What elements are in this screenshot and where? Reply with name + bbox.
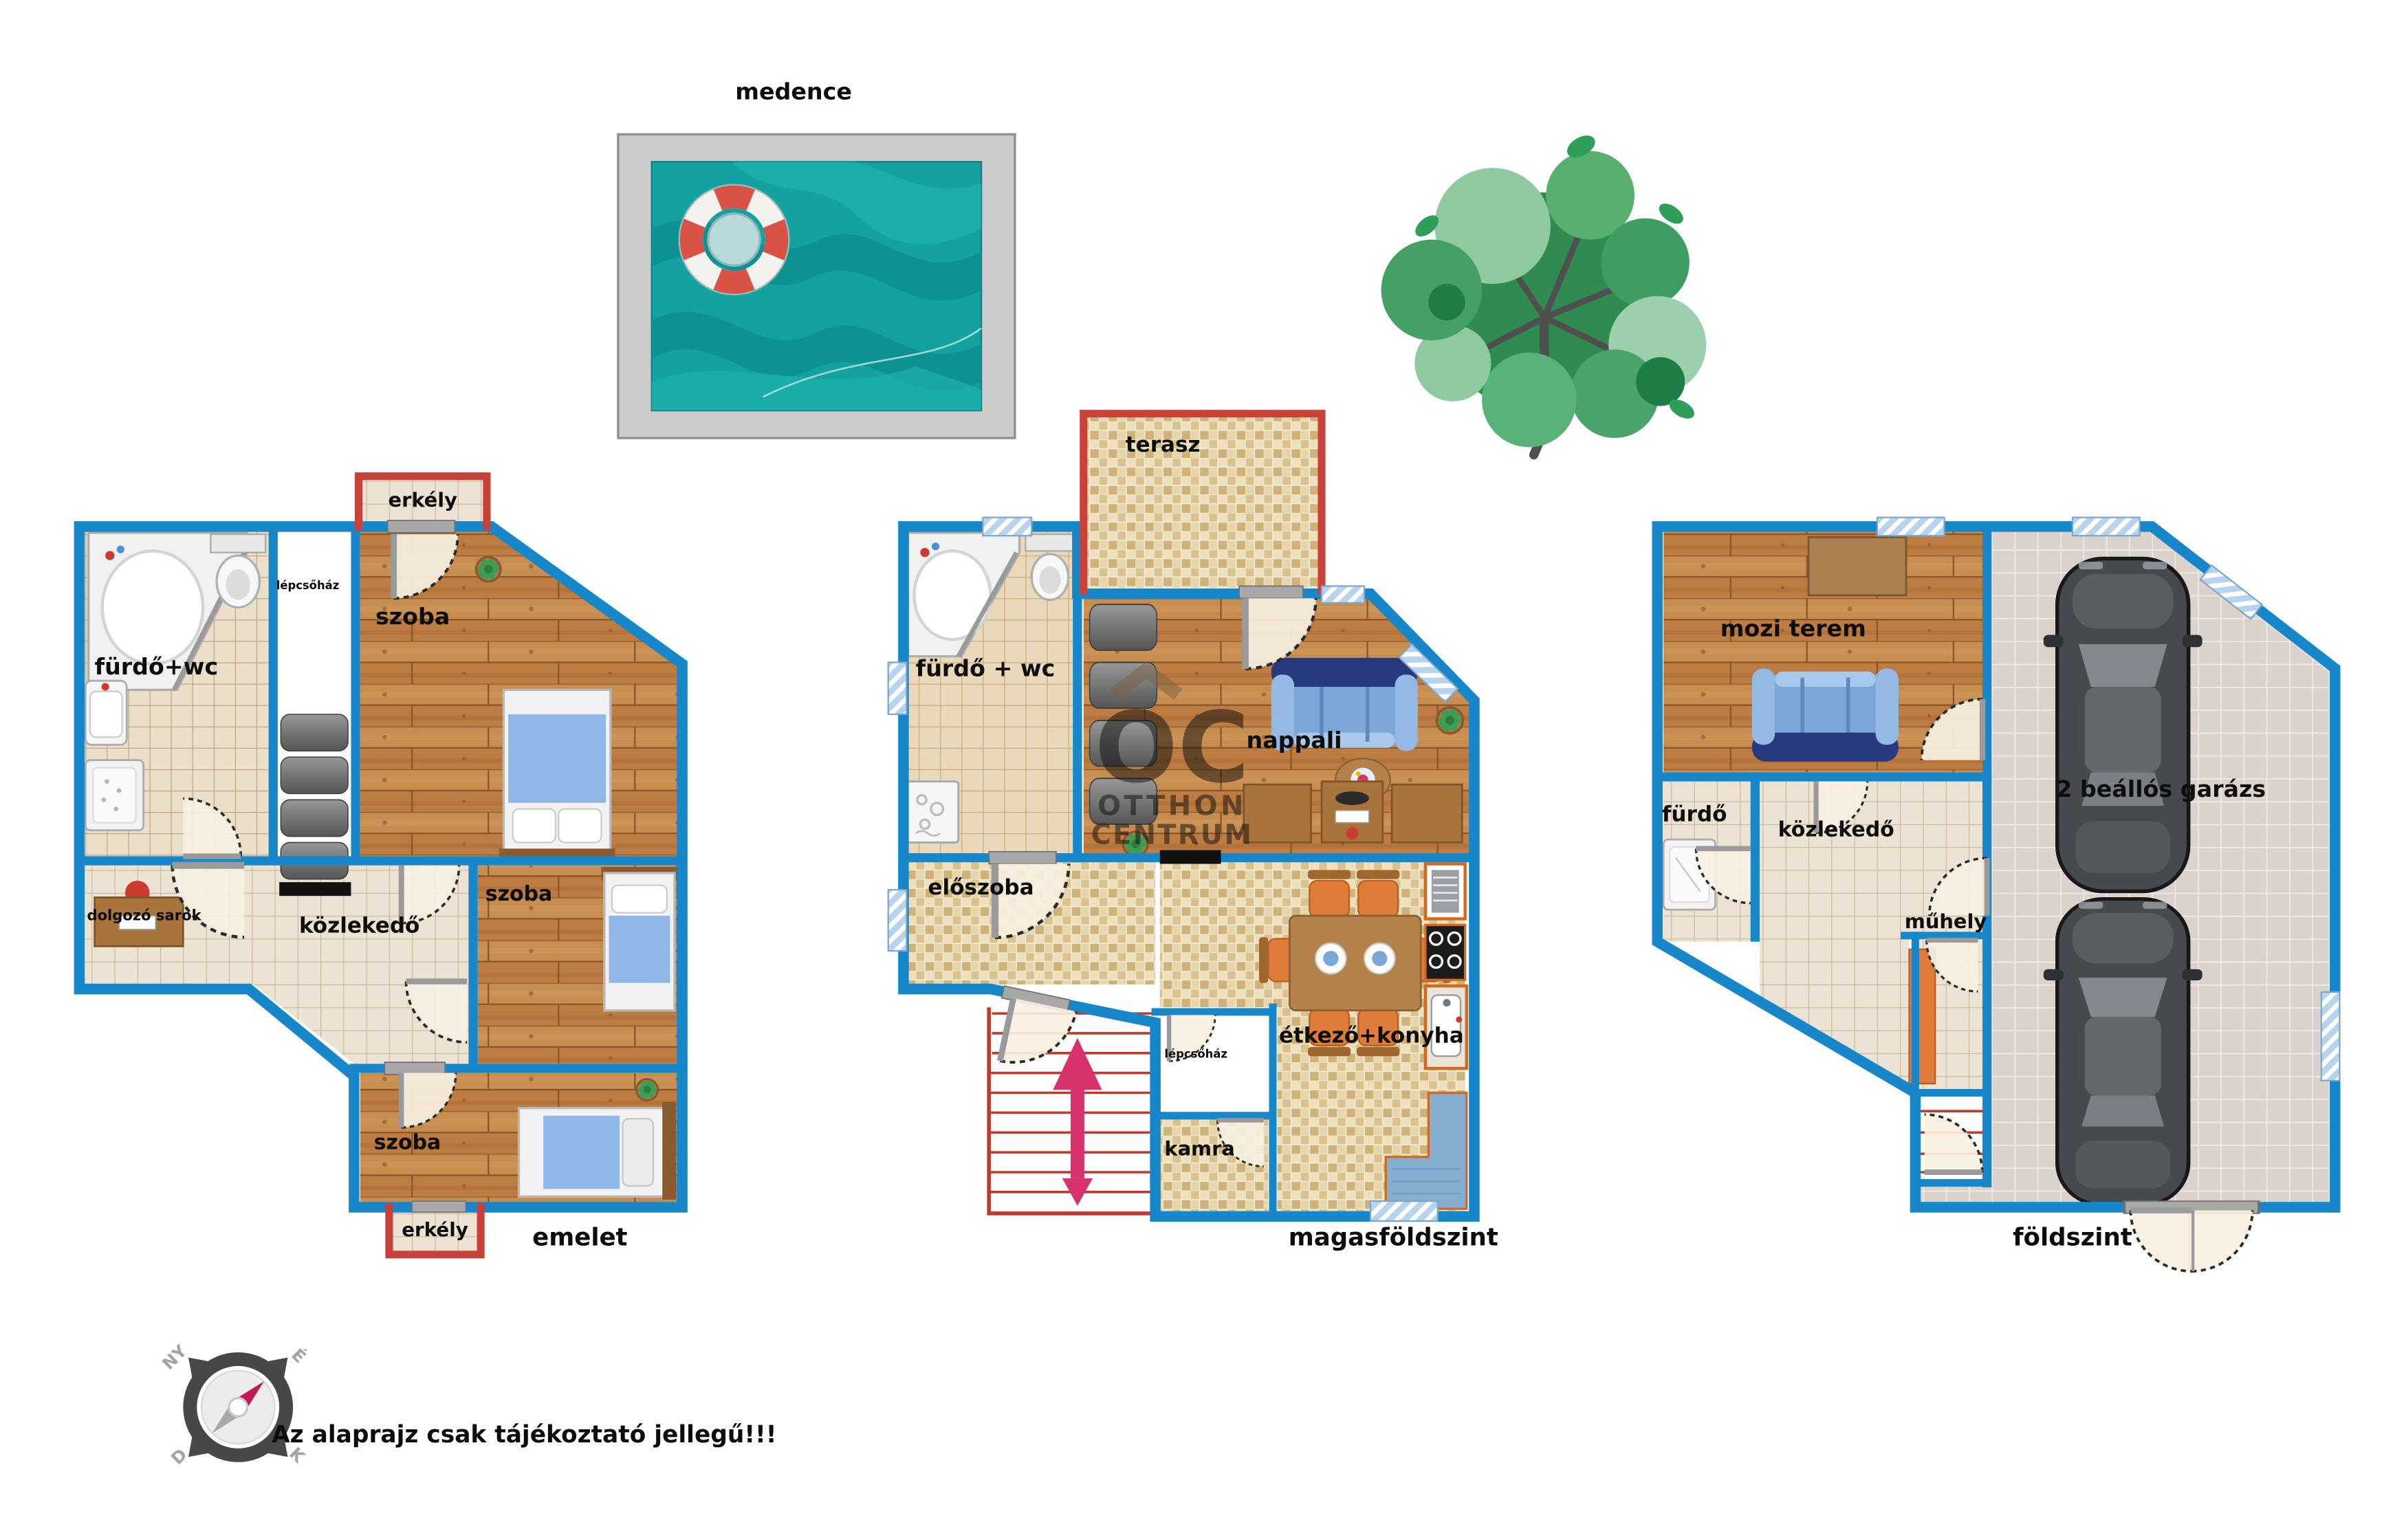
floor-plan-emelet: erkély fürdő+wc lépcsőház szoba dolgozó …: [79, 476, 682, 1255]
room-label-furdo: fürdő: [1662, 802, 1727, 826]
compass-icon: NY É D K: [158, 1341, 310, 1468]
single-bed-horizontal-icon: [519, 1102, 677, 1200]
room-label-kozlekedo: közlekedő: [299, 913, 419, 938]
room-label-szoba-bottom: szoba: [374, 1131, 441, 1155]
room-label-kozlekedo: közlekedő: [1778, 818, 1894, 842]
room-label-eloszoba: előszoba: [928, 875, 1034, 900]
computer-desk-icon: [1244, 782, 1462, 843]
room-label-szoba-mid: szoba: [485, 882, 552, 906]
washing-machine-icon: [906, 782, 958, 843]
sink-icon: [85, 681, 127, 745]
disclaimer-text: Az alaprajz csak tájékoztató jellegű!!!: [272, 1421, 776, 1449]
room-label-erkely-bottom: erkély: [402, 1218, 468, 1241]
tree-icon: [1381, 131, 1707, 454]
pool-label: medence: [735, 78, 852, 104]
room-label-kamra: kamra: [1164, 1137, 1234, 1160]
floor-label-foldszint: földszint: [2013, 1224, 2132, 1252]
pool: medence: [618, 78, 1015, 438]
floorplan-canvas: medence: [0, 0, 2393, 1540]
room-label-lepcsohaz: lépcsőház: [1164, 1047, 1227, 1060]
watermark-centrum: CENTRUM: [1091, 819, 1254, 851]
room-label-szoba-top: szoba: [375, 603, 450, 630]
lifebuoy-icon: [679, 185, 789, 295]
watermark-oc: OC: [1095, 691, 1249, 805]
shower-icon: [85, 760, 143, 830]
room-label-erkely-top: erkély: [389, 488, 458, 511]
car-icon: [2044, 899, 2203, 1205]
room-label-furdo-wc: fürdő + wc: [916, 654, 1056, 681]
compass-label-nw: NY: [158, 1341, 191, 1374]
floor-plan-magasfoldszint: OC OTTHON CENTRUM teras: [888, 414, 1498, 1252]
room-label-lepcsohaz: lépcsőház: [276, 579, 340, 592]
compass-label-sw: D: [167, 1444, 191, 1468]
room-label-etkezo-konyha: étkező+konyha: [1279, 1023, 1464, 1048]
tv-cabinet-icon: [1809, 537, 1906, 595]
floor-label-magasfoldszint: magasföldszint: [1289, 1224, 1498, 1252]
watermark: OC OTTHON CENTRUM: [1091, 670, 1254, 851]
floor-plan-foldszint: mozi terem fürdő közlekedő műhely 2 beál…: [1657, 518, 2339, 1271]
room-label-dolgozo-sarok: dolgozó sarok: [87, 907, 202, 924]
floor-label-emelet: emelet: [532, 1224, 627, 1252]
compass-label-ne: É: [287, 1345, 309, 1367]
room-label-furdo-wc: fürdő+wc: [95, 653, 219, 680]
watermark-otthon: OTTHON: [1097, 790, 1247, 822]
room-label-mozi-terem: mozi terem: [1720, 615, 1866, 642]
room-label-muhely: műhely: [1905, 910, 1987, 933]
room-label-garazs: 2 beállós garázs: [2056, 775, 2266, 802]
room-label-nappali: nappali: [1247, 727, 1342, 753]
car-icon: [2044, 559, 2203, 892]
single-bed-vertical-icon: [601, 867, 677, 1011]
double-bed-icon: [499, 690, 615, 862]
sofa-icon: [1752, 668, 1899, 761]
room-label-terasz: terasz: [1126, 432, 1201, 457]
